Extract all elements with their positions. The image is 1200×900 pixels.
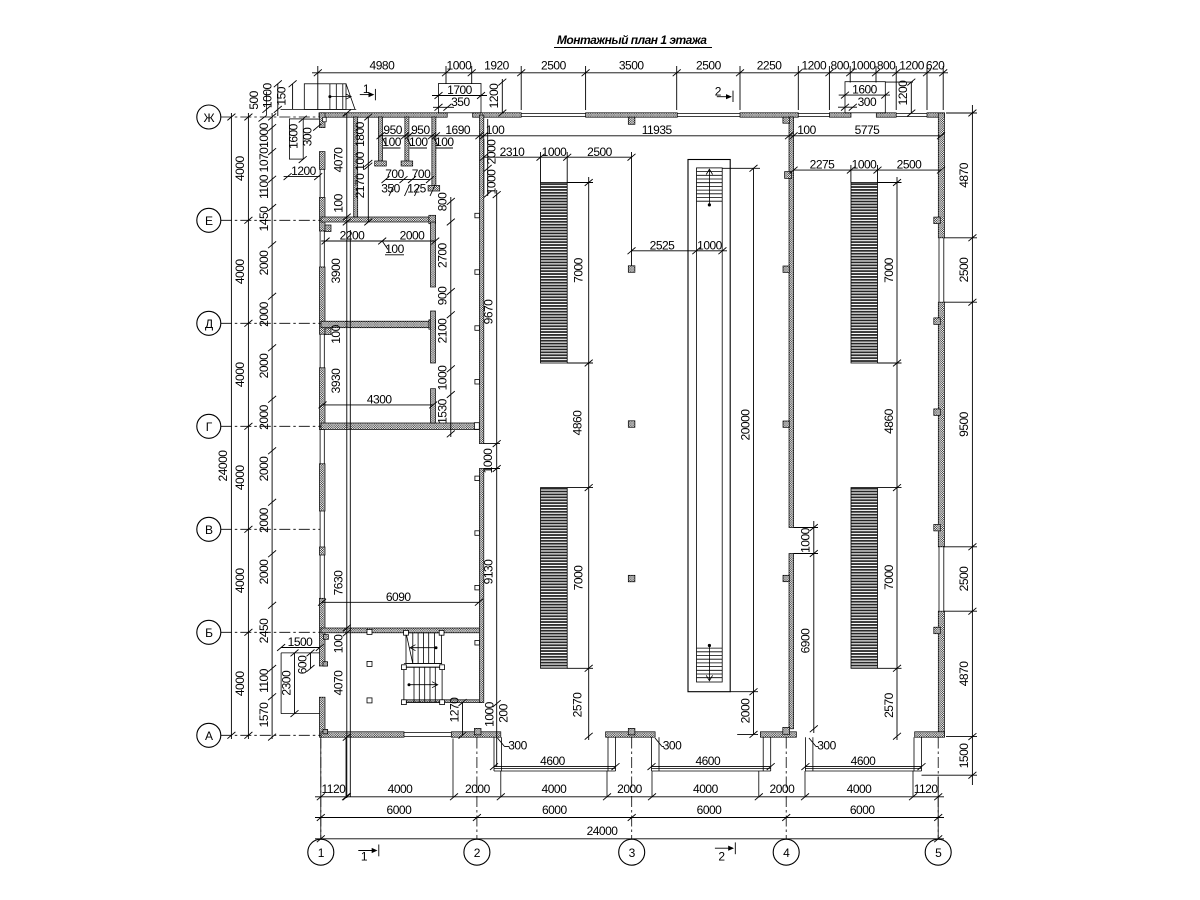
svg-text:4300: 4300 <box>367 393 393 407</box>
svg-text:100: 100 <box>409 135 428 149</box>
svg-text:5: 5 <box>935 846 942 860</box>
svg-text:1000: 1000 <box>257 122 271 148</box>
svg-text:1530: 1530 <box>436 398 450 424</box>
svg-text:4: 4 <box>783 846 790 860</box>
svg-text:2200: 2200 <box>340 229 366 243</box>
svg-text:1450: 1450 <box>257 206 271 232</box>
svg-text:1120: 1120 <box>321 782 346 796</box>
svg-text:100: 100 <box>353 151 367 170</box>
svg-text:2: 2 <box>718 849 725 863</box>
svg-text:1000: 1000 <box>482 701 496 727</box>
svg-text:1200: 1200 <box>291 164 317 178</box>
svg-text:2700: 2700 <box>436 242 450 268</box>
svg-text:24000: 24000 <box>216 450 230 482</box>
svg-text:1000: 1000 <box>799 527 813 553</box>
svg-text:4870: 4870 <box>957 162 971 188</box>
svg-text:100: 100 <box>486 123 505 137</box>
svg-text:2570: 2570 <box>882 692 896 718</box>
svg-text:2275: 2275 <box>810 158 836 172</box>
svg-text:7000: 7000 <box>572 257 586 283</box>
svg-text:1200: 1200 <box>801 58 827 72</box>
svg-text:1120: 1120 <box>914 782 939 796</box>
svg-text:1000: 1000 <box>436 365 450 391</box>
svg-text:1000: 1000 <box>481 448 495 474</box>
svg-text:4070: 4070 <box>332 147 346 173</box>
svg-text:2000: 2000 <box>770 782 796 796</box>
svg-text:800: 800 <box>831 58 850 72</box>
svg-text:800: 800 <box>436 192 450 211</box>
svg-text:2000: 2000 <box>257 559 271 585</box>
svg-text:4000: 4000 <box>233 259 247 285</box>
svg-text:2000: 2000 <box>257 404 271 430</box>
svg-text:4000: 4000 <box>233 671 247 697</box>
svg-text:300: 300 <box>508 739 527 753</box>
svg-text:100: 100 <box>332 634 346 653</box>
svg-text:В: В <box>205 523 213 537</box>
svg-text:2000: 2000 <box>257 250 271 276</box>
svg-text:1100: 1100 <box>257 668 271 693</box>
svg-text:1000: 1000 <box>260 83 274 109</box>
svg-text:Д: Д <box>205 317 213 331</box>
svg-text:2000: 2000 <box>257 456 271 482</box>
svg-text:125: 125 <box>407 181 426 195</box>
svg-text:Монтажный план 1 этажа: Монтажный план 1 этажа <box>557 33 707 47</box>
svg-text:4000: 4000 <box>388 782 414 796</box>
svg-text:1100: 1100 <box>257 174 271 199</box>
svg-text:Г: Г <box>206 420 213 434</box>
svg-text:2500: 2500 <box>696 58 722 72</box>
svg-text:100: 100 <box>435 135 454 149</box>
svg-text:6090: 6090 <box>386 590 412 604</box>
svg-text:300: 300 <box>300 127 314 146</box>
svg-text:350: 350 <box>451 95 470 109</box>
svg-text:2000: 2000 <box>738 698 752 724</box>
svg-text:Ж: Ж <box>204 111 215 125</box>
svg-text:1200: 1200 <box>899 58 925 72</box>
svg-text:2000: 2000 <box>400 229 426 243</box>
svg-text:6000: 6000 <box>542 803 568 817</box>
svg-text:200: 200 <box>496 703 510 722</box>
svg-text:6900: 6900 <box>799 628 813 654</box>
svg-text:1000: 1000 <box>851 58 877 72</box>
svg-text:9130: 9130 <box>482 559 496 585</box>
svg-text:3900: 3900 <box>329 258 343 284</box>
svg-text:100: 100 <box>329 324 343 343</box>
svg-text:2450: 2450 <box>257 618 271 644</box>
svg-text:1200: 1200 <box>896 80 910 106</box>
svg-text:2100: 2100 <box>436 318 450 344</box>
svg-text:4070: 4070 <box>332 670 346 696</box>
svg-text:4860: 4860 <box>882 408 896 434</box>
svg-text:1: 1 <box>318 846 325 860</box>
svg-text:800: 800 <box>877 58 896 72</box>
svg-text:2500: 2500 <box>897 158 923 172</box>
svg-text:2525: 2525 <box>650 238 676 252</box>
svg-text:6000: 6000 <box>850 803 876 817</box>
svg-text:3: 3 <box>629 846 636 860</box>
svg-text:150: 150 <box>274 86 288 105</box>
svg-text:2500: 2500 <box>541 58 567 72</box>
svg-text:4980: 4980 <box>370 58 396 72</box>
svg-text:2000: 2000 <box>257 301 271 327</box>
svg-text:4000: 4000 <box>542 782 568 796</box>
svg-text:1070: 1070 <box>257 147 271 173</box>
svg-text:1570: 1570 <box>257 702 271 728</box>
svg-text:500: 500 <box>247 90 261 109</box>
svg-text:2000: 2000 <box>484 139 498 165</box>
svg-text:2000: 2000 <box>257 353 271 379</box>
svg-text:1000: 1000 <box>852 158 878 172</box>
svg-text:4000: 4000 <box>233 362 247 388</box>
svg-text:700: 700 <box>385 167 404 181</box>
svg-text:9670: 9670 <box>482 299 496 325</box>
svg-text:4000: 4000 <box>233 568 247 594</box>
svg-text:2500: 2500 <box>957 257 971 283</box>
svg-text:2000: 2000 <box>257 507 271 533</box>
svg-text:2310: 2310 <box>500 145 526 159</box>
svg-text:300: 300 <box>858 95 877 109</box>
svg-text:900: 900 <box>436 286 450 305</box>
svg-text:620: 620 <box>926 58 945 72</box>
svg-text:1500: 1500 <box>288 635 314 649</box>
svg-text:2300: 2300 <box>279 670 293 696</box>
svg-text:9500: 9500 <box>957 411 971 437</box>
svg-text:100: 100 <box>382 135 401 149</box>
svg-text:4870: 4870 <box>957 661 971 687</box>
svg-text:3500: 3500 <box>619 58 645 72</box>
svg-text:1920: 1920 <box>484 58 510 72</box>
svg-text:24000: 24000 <box>587 824 619 838</box>
svg-text:11935: 11935 <box>642 123 673 137</box>
svg-text:1: 1 <box>361 849 368 863</box>
svg-text:1000: 1000 <box>542 145 568 159</box>
svg-text:5775: 5775 <box>855 123 881 137</box>
svg-text:Е: Е <box>205 214 213 228</box>
svg-text:Б: Б <box>205 626 213 640</box>
svg-text:4000: 4000 <box>847 782 873 796</box>
svg-text:4000: 4000 <box>233 156 247 182</box>
svg-text:300: 300 <box>663 739 682 753</box>
svg-text:6000: 6000 <box>387 803 413 817</box>
svg-text:2000: 2000 <box>617 782 643 796</box>
svg-text:2: 2 <box>715 84 722 98</box>
svg-text:350: 350 <box>381 181 400 195</box>
svg-text:6000: 6000 <box>697 803 723 817</box>
svg-text:100: 100 <box>797 123 816 137</box>
svg-text:1000: 1000 <box>447 58 473 72</box>
svg-text:4600: 4600 <box>540 754 566 768</box>
svg-text:1000: 1000 <box>697 238 723 252</box>
svg-text:4000: 4000 <box>233 465 247 491</box>
svg-text:4860: 4860 <box>571 410 585 436</box>
svg-text:7000: 7000 <box>572 565 586 591</box>
svg-text:2170: 2170 <box>353 173 367 199</box>
svg-text:2500: 2500 <box>587 145 613 159</box>
svg-text:3930: 3930 <box>329 368 343 394</box>
svg-text:2000: 2000 <box>465 782 491 796</box>
svg-text:700: 700 <box>412 167 431 181</box>
svg-text:2250: 2250 <box>757 58 783 72</box>
svg-text:2: 2 <box>474 846 481 860</box>
svg-text:4600: 4600 <box>851 754 877 768</box>
svg-text:4000: 4000 <box>693 782 719 796</box>
svg-text:1800: 1800 <box>353 121 367 147</box>
svg-text:7000: 7000 <box>882 257 896 283</box>
svg-text:1270: 1270 <box>447 697 461 723</box>
svg-text:2500: 2500 <box>957 566 971 592</box>
svg-text:1500: 1500 <box>957 743 971 769</box>
svg-text:7630: 7630 <box>332 570 346 596</box>
svg-text:7000: 7000 <box>882 564 896 590</box>
svg-text:1200: 1200 <box>487 83 501 109</box>
svg-text:100: 100 <box>332 193 346 212</box>
svg-text:4600: 4600 <box>695 754 721 768</box>
svg-text:2570: 2570 <box>571 692 585 718</box>
svg-text:А: А <box>205 729 213 743</box>
svg-text:1600: 1600 <box>286 123 300 149</box>
svg-text:20000: 20000 <box>738 409 752 441</box>
svg-text:600: 600 <box>295 655 309 674</box>
svg-text:300: 300 <box>817 739 836 753</box>
svg-text:1000: 1000 <box>484 169 498 195</box>
